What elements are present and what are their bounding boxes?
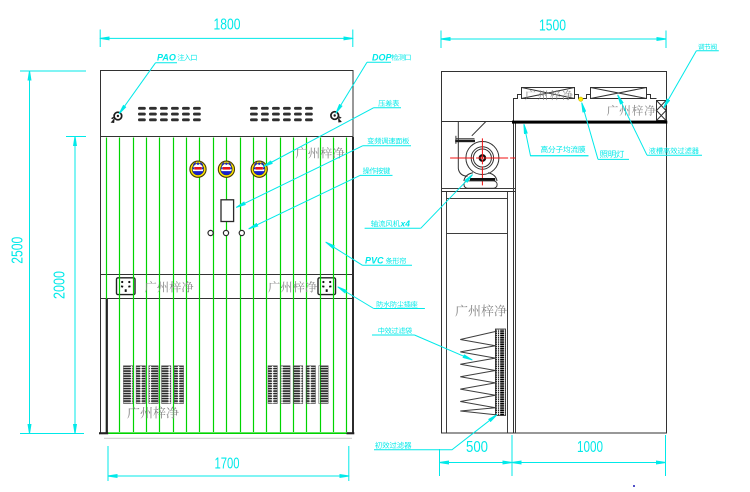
svg-text:2000: 2000 [52, 271, 69, 299]
svg-text:PVC: PVC [365, 256, 384, 266]
svg-text:DOP: DOP [372, 52, 393, 62]
svg-text:PAO: PAO [157, 53, 176, 63]
svg-text:1000: 1000 [577, 439, 603, 456]
svg-text:1800: 1800 [214, 16, 241, 33]
svg-text:1500: 1500 [539, 18, 566, 35]
svg-text:x4: x4 [400, 219, 411, 229]
svg-text:500: 500 [466, 439, 488, 456]
svg-text:2500: 2500 [10, 236, 27, 263]
svg-text:1700: 1700 [215, 456, 240, 473]
